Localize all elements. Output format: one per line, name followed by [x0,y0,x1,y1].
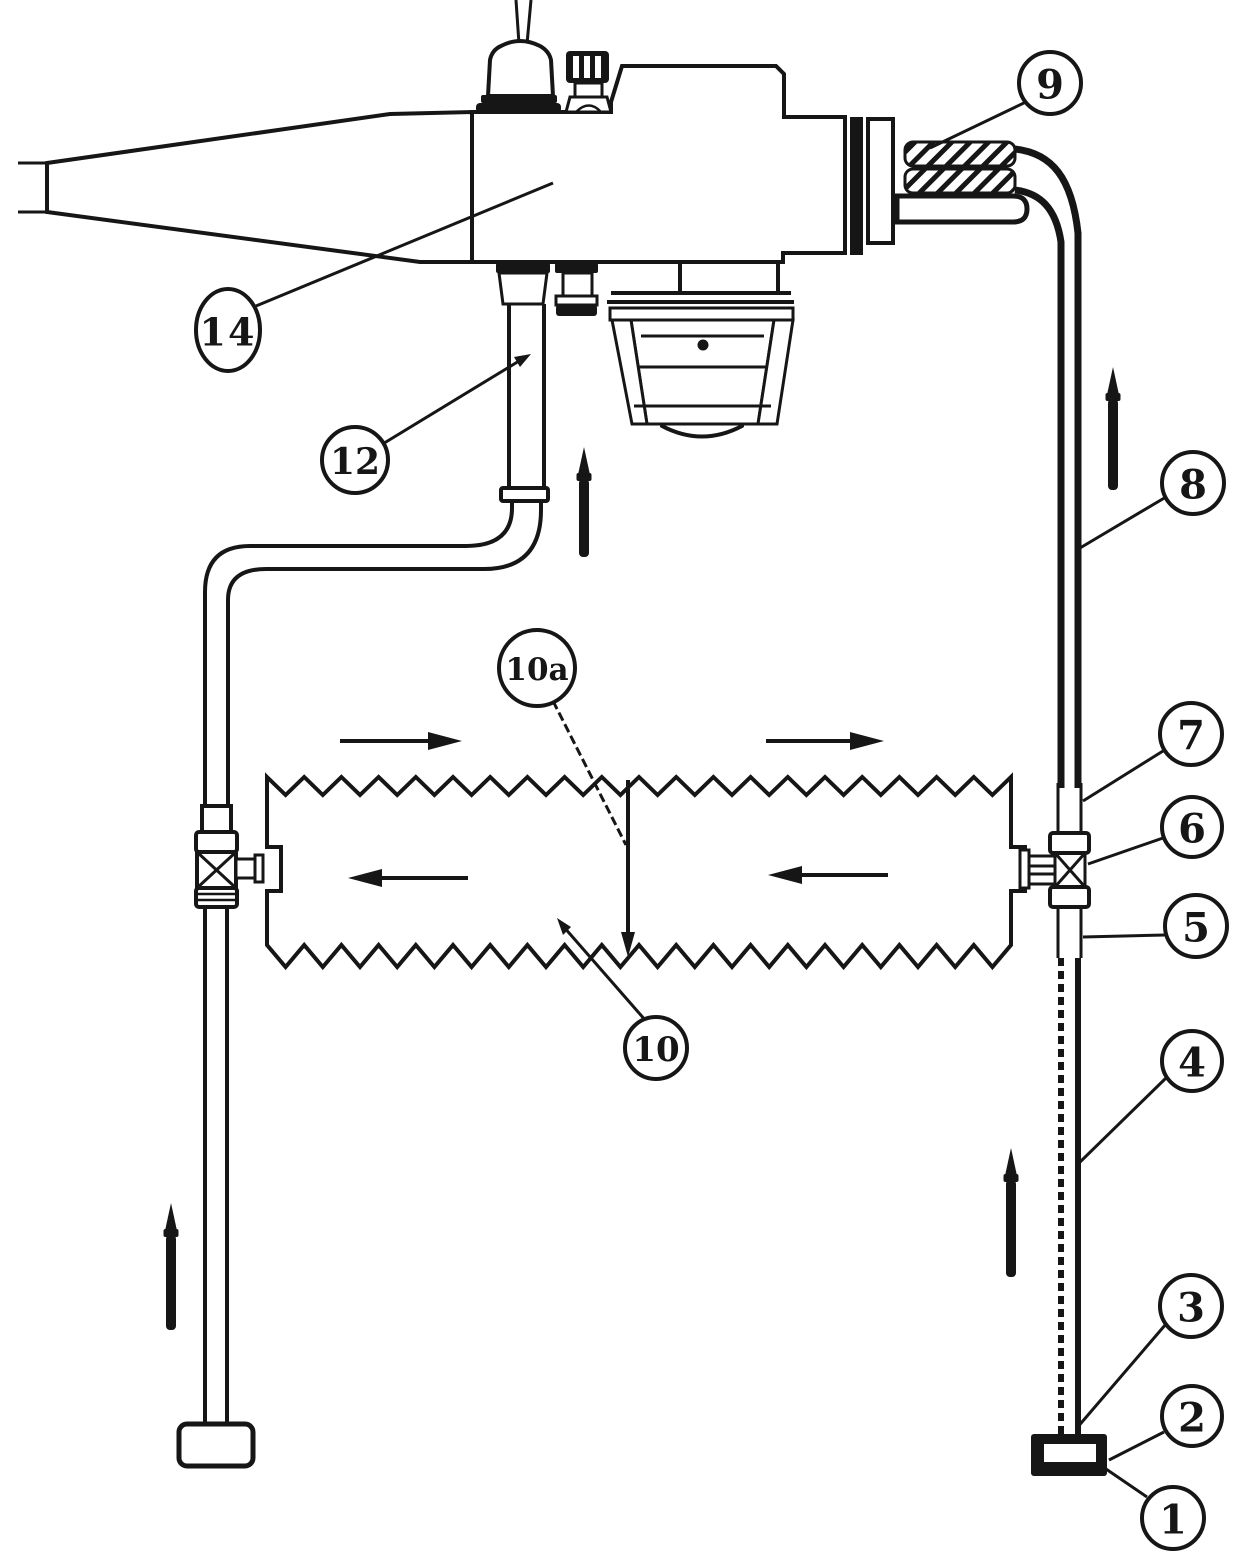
callout-5: 5 [1165,895,1227,957]
knob-stem [575,83,602,97]
electrode-wire [516,0,531,44]
callout-6-label: 6 [1178,806,1206,853]
riser-pipe-inner-wall [1015,190,1061,788]
flow-arrow-up-right-bottom [1004,1148,1019,1277]
wire-line [527,0,531,44]
cup-bottom-arc [662,426,742,437]
right-valve-collar-bottom [1050,887,1089,907]
tube-bottom-flange [501,488,548,501]
hose-fitting-lower [905,169,1015,193]
tube-funnel [499,273,547,304]
siphon-tube-assembly [205,263,598,806]
flow-arrow-up-right-top [1106,367,1121,490]
dome-knob [476,41,561,113]
horn-cone [47,112,472,262]
callout-4: 4 [1162,1031,1222,1091]
rear-rod [897,196,1027,222]
flow-arrow-up-center [577,447,592,557]
leader-3 [1076,1324,1166,1429]
right-pipe-assembly [1015,149,1107,1476]
right-valve-collar-top [1050,833,1089,853]
knob-slot [595,56,601,78]
callout-6: 6 [1162,797,1222,857]
callout-3: 3 [1160,1275,1222,1337]
dome-knob-base [476,103,561,113]
callout-5-label: 5 [1182,905,1210,952]
callout-9-label: 9 [1036,62,1064,109]
callout-14: 14 [196,289,260,371]
left-nozzle-cap [255,855,263,882]
callout-8-label: 8 [1179,462,1207,509]
callout-7-label: 7 [1177,713,1205,760]
callout-10a: 10a [499,630,575,706]
leader-4 [1079,1078,1166,1163]
right-foot-window [1044,1444,1096,1462]
callout-2: 2 [1162,1386,1222,1446]
vent-fitting [555,263,598,316]
knob-slot [584,56,590,78]
left-valve-collar-bottom [196,888,237,907]
flow-arrow-right-upper-left [340,732,462,750]
cup-top-ring [610,308,793,320]
callout-4-label: 4 [1178,1040,1206,1087]
powder-cup-assembly [607,262,794,437]
figure-canvas: 14 12 10a 10 9 8 7 6 [0,0,1240,1556]
spray-gun-assembly [18,0,1027,262]
callout-10a-label: 10a [505,652,568,688]
vent-base [556,305,597,316]
horn-nozzle [18,112,472,262]
callout-8: 8 [1162,452,1224,514]
right-nozzle-prong [1029,856,1055,866]
right-nozzle-prong [1029,874,1055,884]
leader-8 [1080,497,1166,548]
vent-flare [556,296,597,305]
leader-5 [1083,935,1165,937]
dome-knob-cap [488,41,553,96]
vent-stem [563,273,592,296]
flow-arrow-up-left-bottom [164,1203,179,1330]
leader-12-arrowhead [514,354,531,367]
dome-knob-collar [481,95,557,103]
callout-10: 10 [625,1017,687,1079]
callout-7: 7 [1160,703,1222,765]
leader-12 [381,361,519,445]
callout-14-label: 14 [200,310,257,355]
callout-9: 9 [1019,52,1081,114]
leader-6 [1088,838,1163,864]
callout-1-label: 1 [1159,1497,1187,1544]
callout-1: 1 [1142,1487,1204,1549]
callout-12-label: 12 [330,441,380,483]
callout-12: 12 [322,427,388,493]
cup-center-dot [698,340,709,351]
hose-fitting-upper [905,142,1015,166]
rear-collar [868,119,893,243]
callout-10-label: 10 [632,1030,679,1070]
left-foot [179,1424,253,1466]
ribbed-adjuster-knob [566,51,611,112]
patent-figure: 14 12 10a 10 9 8 7 6 [0,0,1240,1556]
leader-7 [1083,751,1163,801]
callout-3-label: 3 [1177,1285,1205,1332]
leader-2 [1109,1432,1164,1460]
knob-slot [573,56,579,78]
left-valve-neck [202,806,231,832]
flow-arrow-right-upper-right [766,732,884,750]
rear-stack [850,117,1027,255]
leader-1 [1106,1469,1147,1497]
left-valve-nozzle [236,859,255,878]
riser-pipe-outer-wall [1015,149,1078,788]
left-hose-outer [205,501,512,806]
left-valve-collar-top [196,832,237,852]
callout-2-label: 2 [1178,1395,1206,1442]
left-valve-assembly [179,806,263,1466]
rear-plate [850,117,863,255]
wire-line [516,0,519,44]
